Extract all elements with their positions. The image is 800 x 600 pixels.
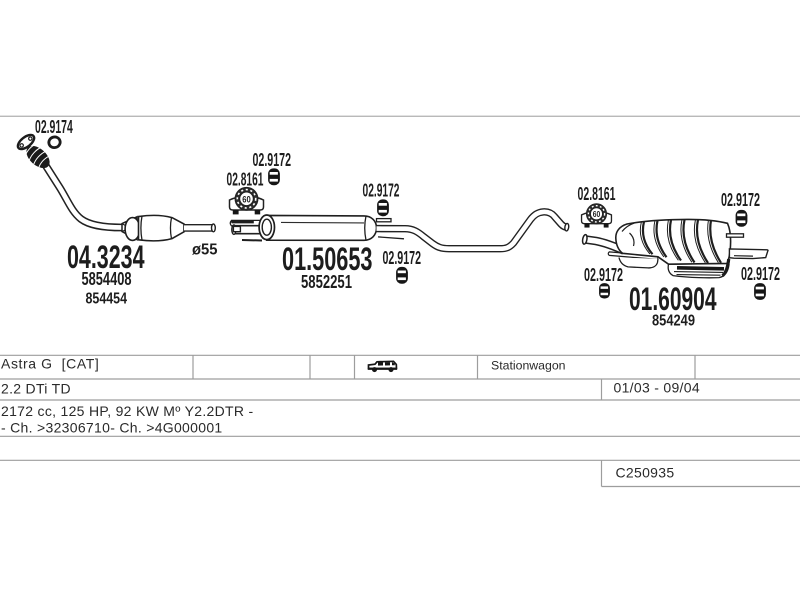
svg-text:02.9172: 02.9172	[383, 248, 422, 268]
svg-text:02.9172: 02.9172	[741, 264, 780, 284]
svg-text:02.8161: 02.8161	[227, 170, 264, 190]
svg-text:Stationwagon: Stationwagon	[491, 359, 566, 373]
svg-text:02.9172: 02.9172	[721, 190, 760, 210]
svg-text:02.9172: 02.9172	[584, 265, 623, 285]
svg-text:5854408: 5854408	[82, 269, 132, 289]
svg-text:02.9172: 02.9172	[253, 150, 292, 170]
svg-text:5852251: 5852251	[301, 272, 352, 292]
svg-text:ø55: ø55	[192, 242, 218, 259]
svg-text:2172 cc, 125 HP, 92 KW Mº Y2.2: 2172 cc, 125 HP, 92 KW Mº Y2.2DTR -	[1, 403, 253, 419]
svg-text:854249: 854249	[652, 313, 695, 330]
svg-text:C250935: C250935	[616, 464, 675, 480]
svg-text:2.2 DTi TD: 2.2 DTi TD	[1, 381, 71, 397]
svg-text:Astra G [CAT]: Astra G [CAT]	[1, 356, 99, 372]
svg-text:02.8161: 02.8161	[578, 184, 616, 204]
svg-text:02.9172: 02.9172	[363, 181, 400, 201]
svg-text:- Ch. >32306710- Ch. >4G000001: - Ch. >32306710- Ch. >4G000001	[1, 419, 223, 435]
svg-text:01/03 - 09/04: 01/03 - 09/04	[614, 380, 700, 396]
svg-text:02.9174: 02.9174	[35, 117, 73, 137]
svg-text:854454: 854454	[86, 291, 128, 308]
